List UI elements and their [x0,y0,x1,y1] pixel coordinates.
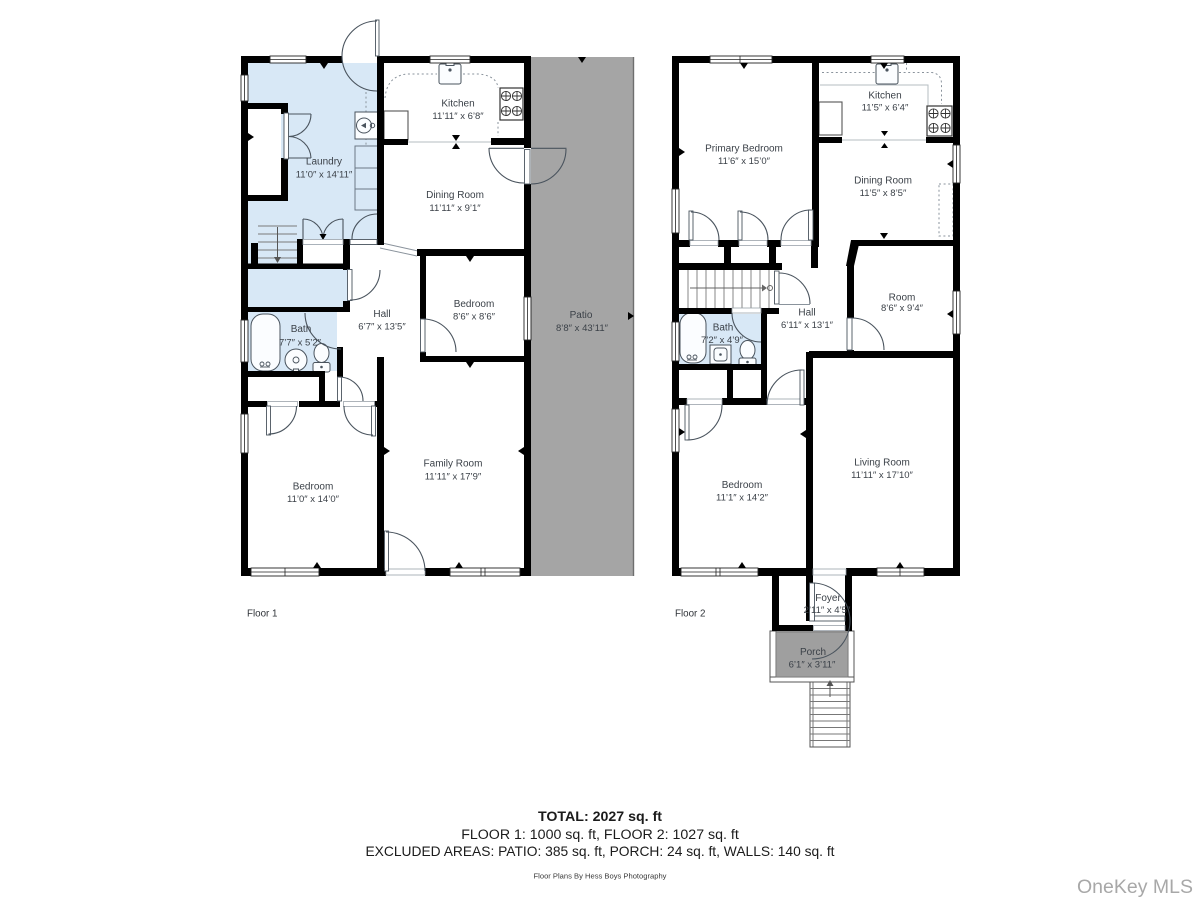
svg-text:Dining Room: Dining Room [426,190,484,201]
svg-text:EXCLUDED AREAS: PATIO: 385 sq.: EXCLUDED AREAS: PATIO: 385 sq. ft, PORCH… [365,844,834,859]
svg-text:11’5″ x 8’5″: 11’5″ x 8’5″ [860,188,907,199]
svg-text:8’6″ x 8’6″: 8’6″ x 8’6″ [453,312,496,323]
svg-text:FLOOR 1: 1000 sq. ft, FLOOR 2:: FLOOR 1: 1000 sq. ft, FLOOR 2: 1027 sq. … [461,827,739,843]
svg-text:11’11″ x 9’1″: 11’11″ x 9’1″ [429,203,481,214]
svg-text:Porch: Porch [800,647,826,658]
svg-text:Laundry: Laundry [306,157,342,168]
svg-text:Bath: Bath [291,324,312,335]
svg-text:Room: Room [889,293,916,304]
svg-text:6’1″ x 3’11″: 6’1″ x 3’11″ [789,660,836,671]
svg-text:11’1″ x 14’2″: 11’1″ x 14’2″ [716,493,769,504]
svg-text:Family Room: Family Room [424,459,483,470]
svg-text:Primary Bedroom: Primary Bedroom [705,144,783,155]
svg-text:6’11″ x 13’1″: 6’11″ x 13’1″ [781,320,834,331]
svg-text:Floor Plans By Hess Boys Photo: Floor Plans By Hess Boys Photography [534,872,667,881]
svg-text:Living Room: Living Room [854,458,910,469]
svg-text:Dining Room: Dining Room [854,176,912,187]
svg-text:Floor 2: Floor 2 [675,609,706,620]
svg-text:Kitchen: Kitchen [441,99,474,110]
svg-text:7’2″ x 4’9″: 7’2″ x 4’9″ [701,335,744,346]
svg-text:Patio: Patio [570,310,593,321]
svg-text:Bedroom: Bedroom [722,480,763,491]
svg-text:11’5″ x 6’4″: 11’5″ x 6’4″ [862,103,909,114]
svg-text:TOTAL: 2027 sq. ft: TOTAL: 2027 sq. ft [538,809,662,825]
svg-text:Hall: Hall [373,309,390,320]
svg-text:Bath: Bath [713,323,734,334]
svg-text:Bedroom: Bedroom [293,482,334,493]
svg-text:8’6″ x 9’4″: 8’6″ x 9’4″ [881,303,924,314]
svg-text:11’0″ x 14’0″: 11’0″ x 14’0″ [287,494,340,505]
svg-text:Floor 1: Floor 1 [247,609,278,620]
svg-text:11’6″ x 15’0″: 11’6″ x 15’0″ [718,156,771,167]
svg-text:2’11″ x 4’5″: 2’11″ x 4’5″ [804,605,851,616]
svg-text:7’7″ x 5’2″: 7’7″ x 5’2″ [279,338,322,349]
svg-text:Foyer: Foyer [815,593,841,604]
svg-text:11’0″ x 14’11″: 11’0″ x 14’11″ [296,170,353,181]
svg-text:11’11″ x 17’10″: 11’11″ x 17’10″ [851,470,913,481]
svg-text:Hall: Hall [798,308,815,319]
svg-text:11’11″ x 6’8″: 11’11″ x 6’8″ [432,111,484,122]
svg-text:8’8″ x 43’11″: 8’8″ x 43’11″ [556,323,609,334]
svg-text:11’11″ x 17’9″: 11’11″ x 17’9″ [425,472,482,483]
svg-text:Kitchen: Kitchen [868,91,901,102]
svg-text:OneKey MLS: OneKey MLS [1077,876,1193,898]
svg-text:6’7″ x 13’5″: 6’7″ x 13’5″ [358,322,406,333]
svg-text:Bedroom: Bedroom [454,299,495,310]
